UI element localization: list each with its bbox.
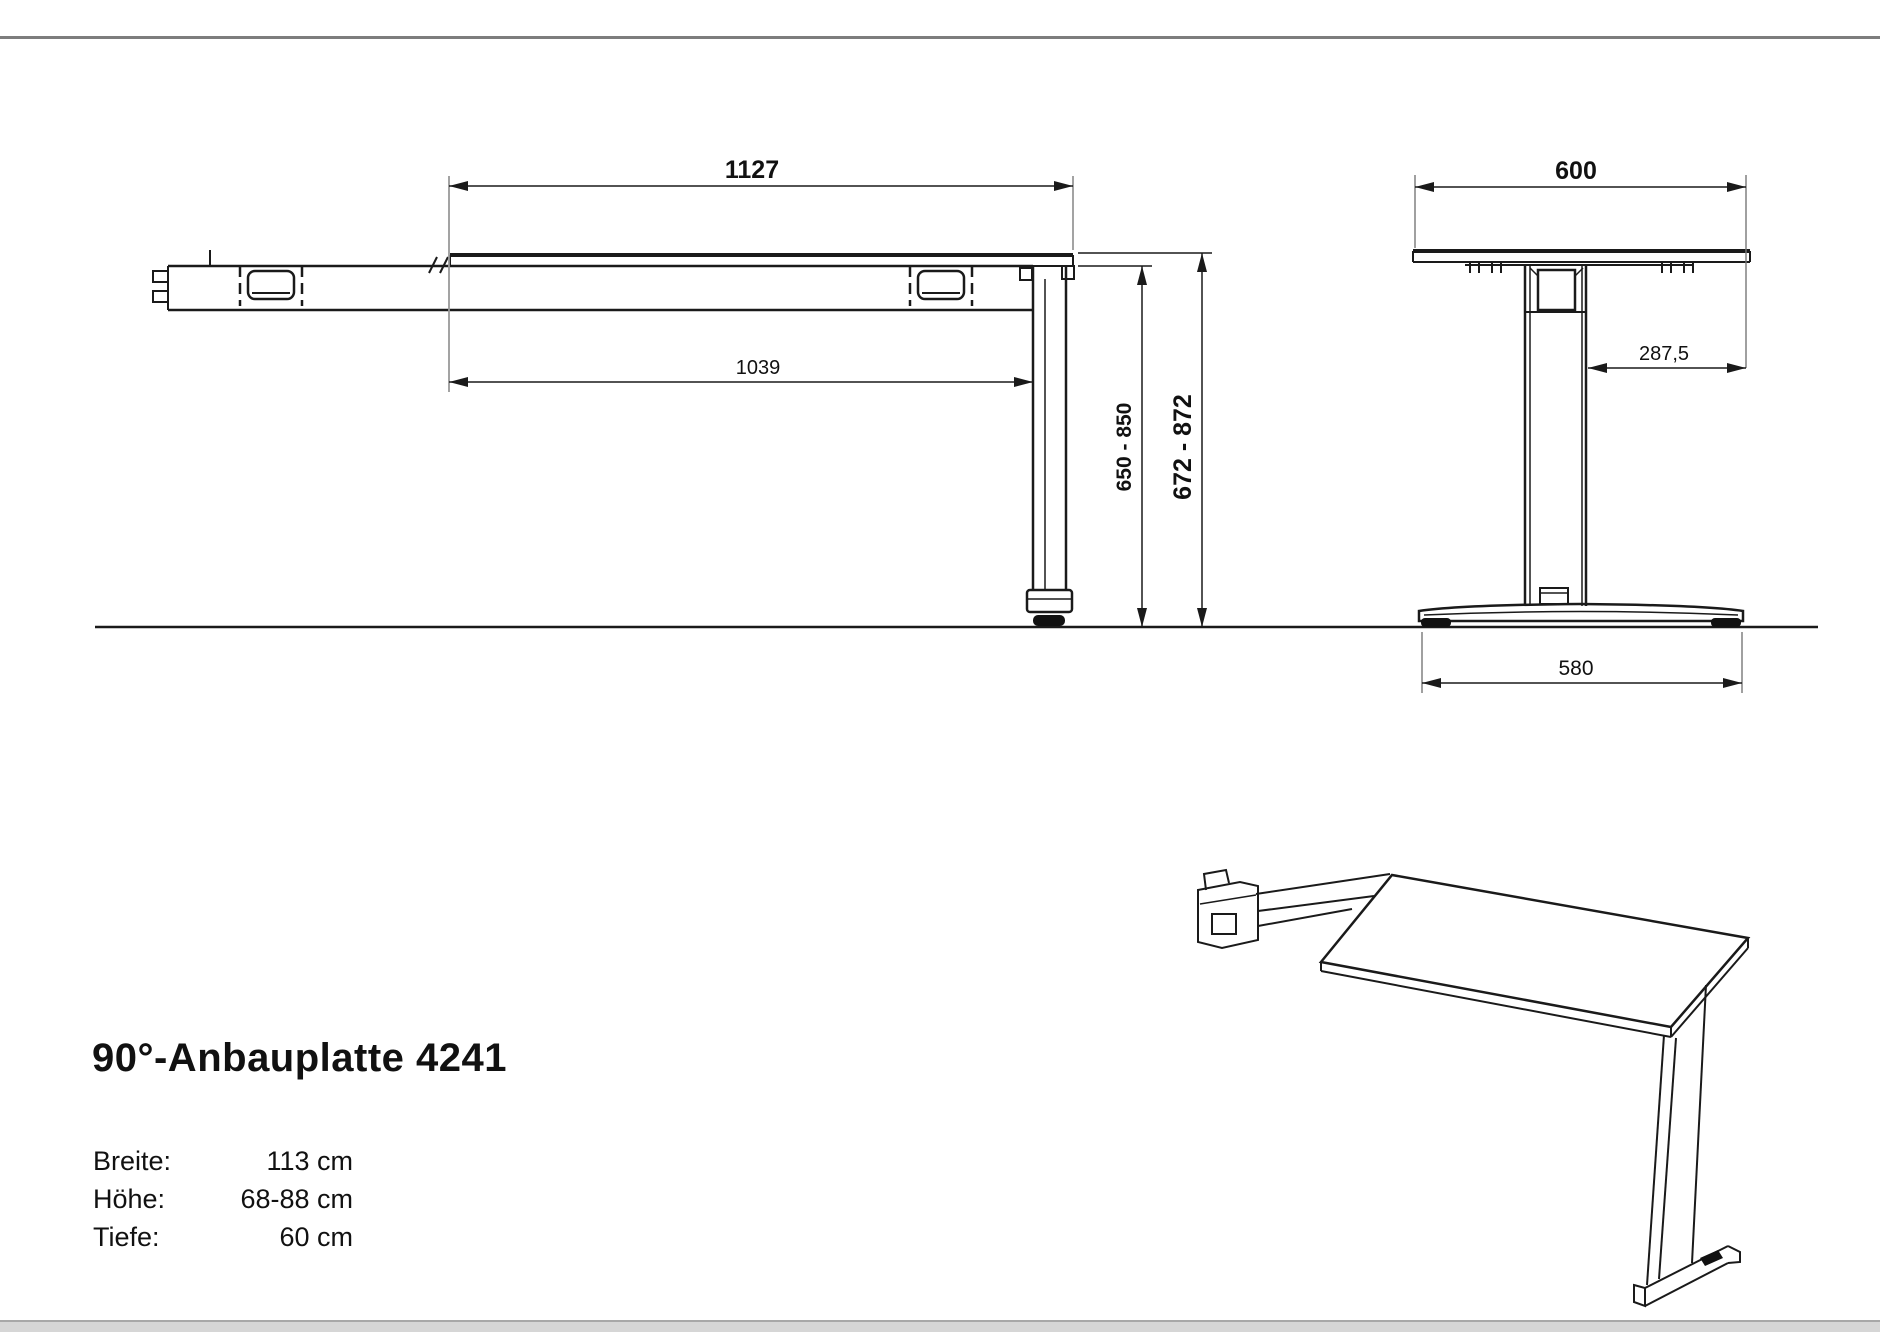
spec-table: Breite: 113 cm Höhe: 68-88 cm Tiefe: 60 … xyxy=(93,1142,353,1256)
page-bottom-border-strip xyxy=(0,1322,1880,1332)
spec-label-breite: Breite: xyxy=(93,1142,215,1180)
front-view-column xyxy=(1525,265,1586,606)
spec-value-hoehe: 68-88 cm xyxy=(215,1180,353,1218)
dim-label-672-872: 672 - 872 xyxy=(1169,394,1197,500)
dimension-drawing: 1127 1039 650 - 850 xyxy=(0,0,1880,1332)
spec-row-tiefe: Tiefe: 60 cm xyxy=(93,1218,353,1256)
isometric-view-drawing xyxy=(1198,870,1748,1306)
spec-label-hoehe: Höhe: xyxy=(93,1180,215,1218)
dim-label-287-5: 287,5 xyxy=(1639,343,1689,365)
side-view-drawing: 1127 1039 650 - 850 xyxy=(153,156,1212,627)
cable-port-left xyxy=(240,266,302,306)
dim-label-600: 600 xyxy=(1555,157,1597,185)
dimension-inner-width: 1039 xyxy=(449,357,1033,387)
dimension-foot-width: 580 xyxy=(1422,632,1742,693)
dim-label-650-850: 650 - 850 xyxy=(1113,403,1136,492)
front-view-foot xyxy=(1419,604,1743,627)
iso-cantilever-arm xyxy=(1256,874,1390,926)
dimension-height-top: 672 - 872 xyxy=(1078,253,1212,627)
front-view-drawing: 600 287,5 580 xyxy=(1413,157,1750,693)
technical-drawing-page: 1127 1039 650 - 850 xyxy=(0,0,1880,1332)
dim-label-580: 580 xyxy=(1558,657,1593,680)
cable-port-right xyxy=(910,266,972,306)
spec-value-tiefe: 60 cm xyxy=(215,1218,353,1256)
dimension-height-underside: 650 - 850 xyxy=(1078,266,1152,627)
spec-value-breite: 113 cm xyxy=(215,1142,353,1180)
dim-label-1039: 1039 xyxy=(736,357,781,379)
iso-clamp-block xyxy=(1198,870,1258,948)
spec-row-breite: Breite: 113 cm xyxy=(93,1142,353,1180)
dim-label-1127: 1127 xyxy=(725,156,779,184)
spec-label-tiefe: Tiefe: xyxy=(93,1218,215,1256)
product-title: 90°-Anbauplatte 4241 xyxy=(92,1036,507,1081)
dimension-column-to-edge: 287,5 xyxy=(1588,343,1746,373)
attachment-plate-edge xyxy=(429,255,1073,273)
spec-row-hoehe: Höhe: 68-88 cm xyxy=(93,1180,353,1218)
side-view-leg xyxy=(1020,266,1074,626)
